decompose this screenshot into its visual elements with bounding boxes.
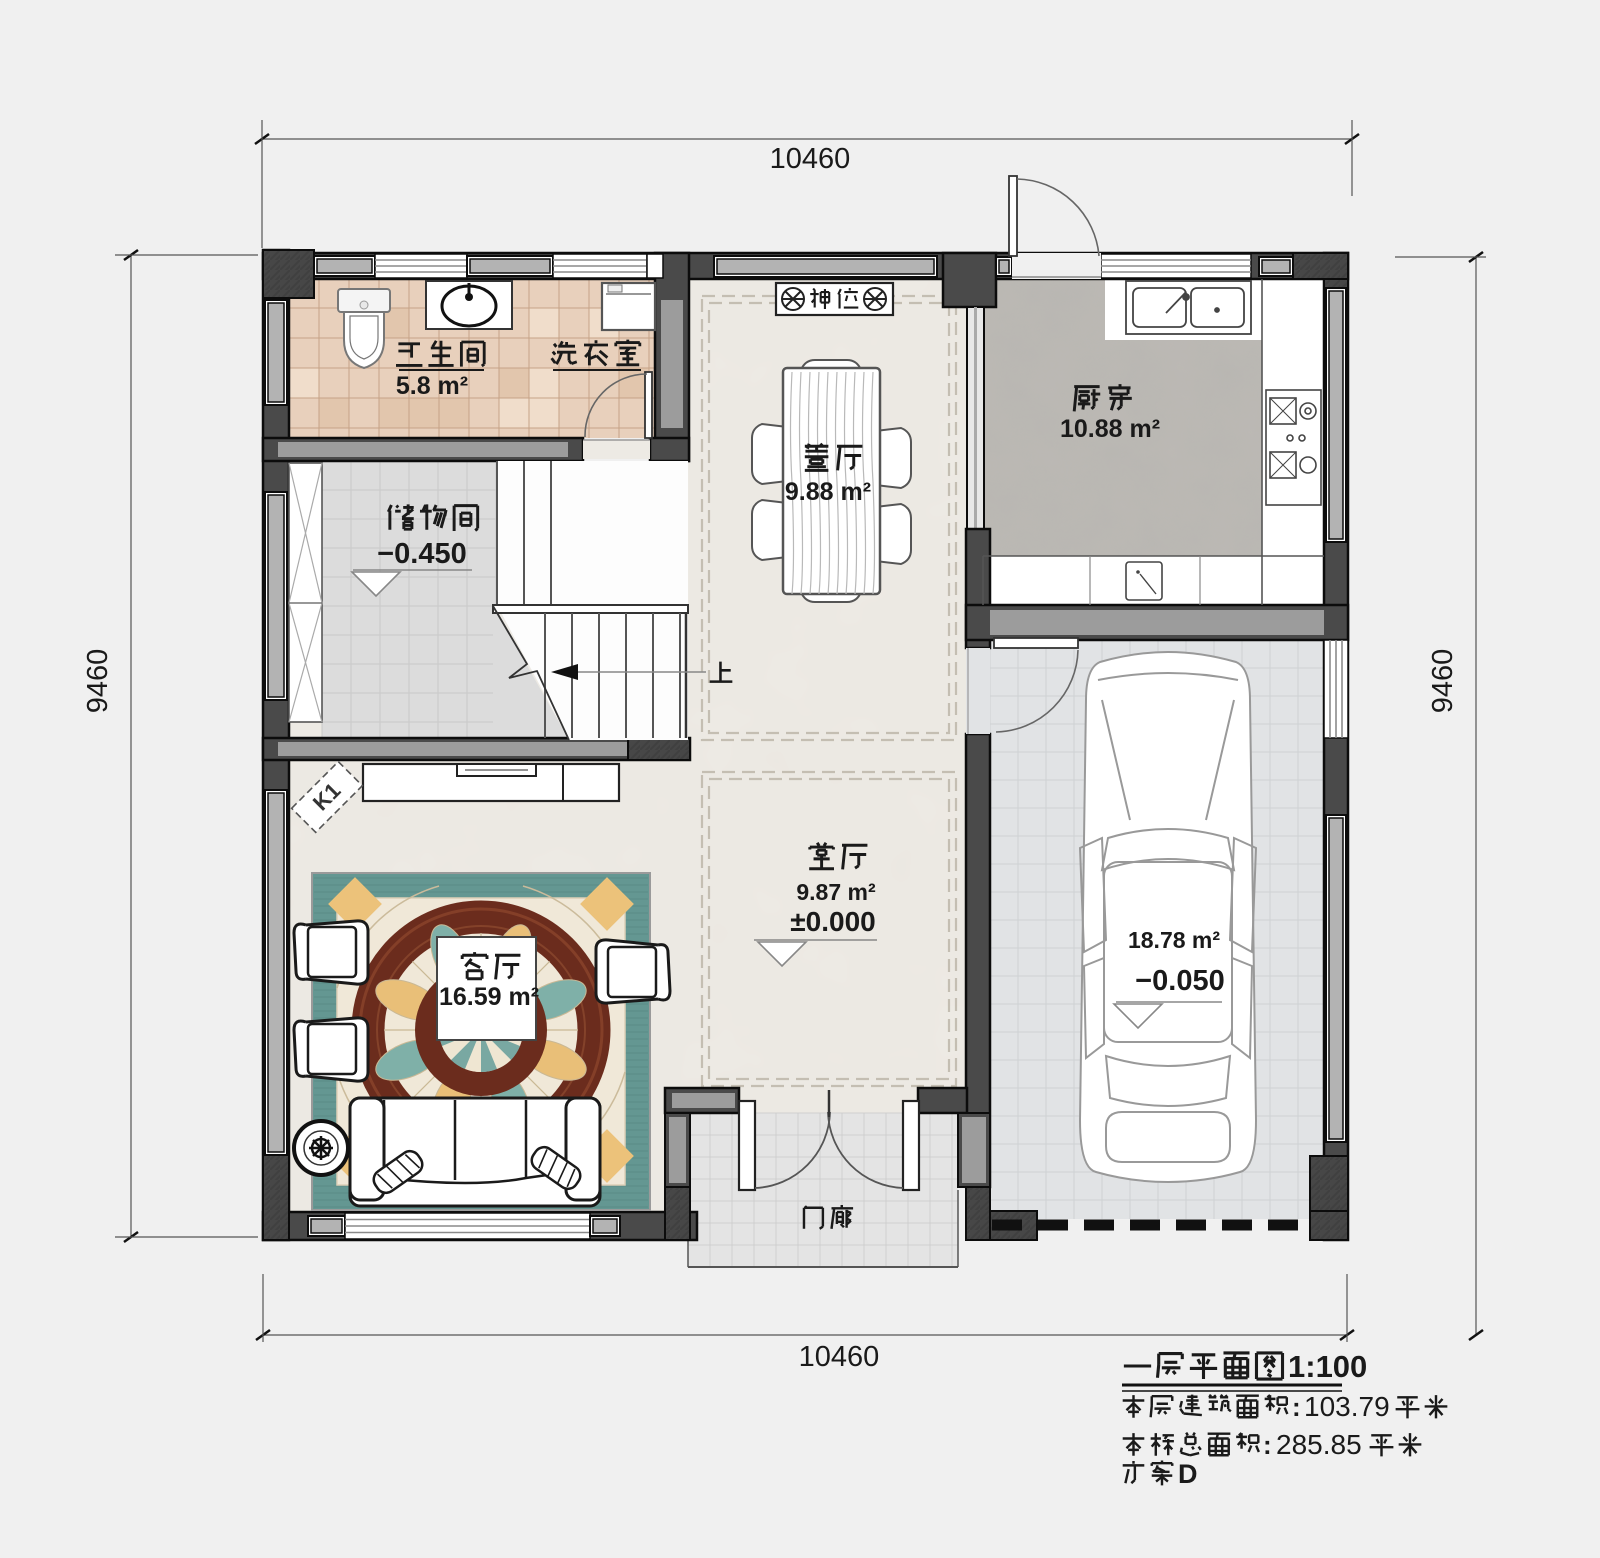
svg-text:9460: 9460 — [82, 649, 114, 714]
svg-text:285.85: 285.85 — [1276, 1429, 1362, 1460]
svg-text:103.79: 103.79 — [1304, 1391, 1390, 1422]
svg-text:9.88 m²: 9.88 m² — [785, 478, 871, 506]
svg-text:5.8 m²: 5.8 m² — [396, 372, 468, 400]
svg-text:±0.000: ±0.000 — [790, 906, 875, 937]
svg-text:16.59 m²: 16.59 m² — [439, 983, 539, 1011]
svg-text::: : — [1292, 1392, 1301, 1422]
svg-text:−0.050: −0.050 — [1135, 965, 1225, 997]
svg-text:9460: 9460 — [1427, 649, 1459, 714]
svg-text:18.78 m²: 18.78 m² — [1128, 927, 1220, 953]
svg-text:10460: 10460 — [799, 1341, 880, 1373]
svg-text::: : — [1263, 1430, 1272, 1460]
svg-text:10460: 10460 — [770, 143, 851, 175]
svg-text:D: D — [1178, 1459, 1198, 1489]
svg-text:−0.450: −0.450 — [377, 538, 467, 570]
svg-text:1:100: 1:100 — [1288, 1349, 1367, 1384]
svg-text:10.88 m²: 10.88 m² — [1060, 415, 1160, 443]
svg-text:9.87 m²: 9.87 m² — [796, 879, 876, 905]
